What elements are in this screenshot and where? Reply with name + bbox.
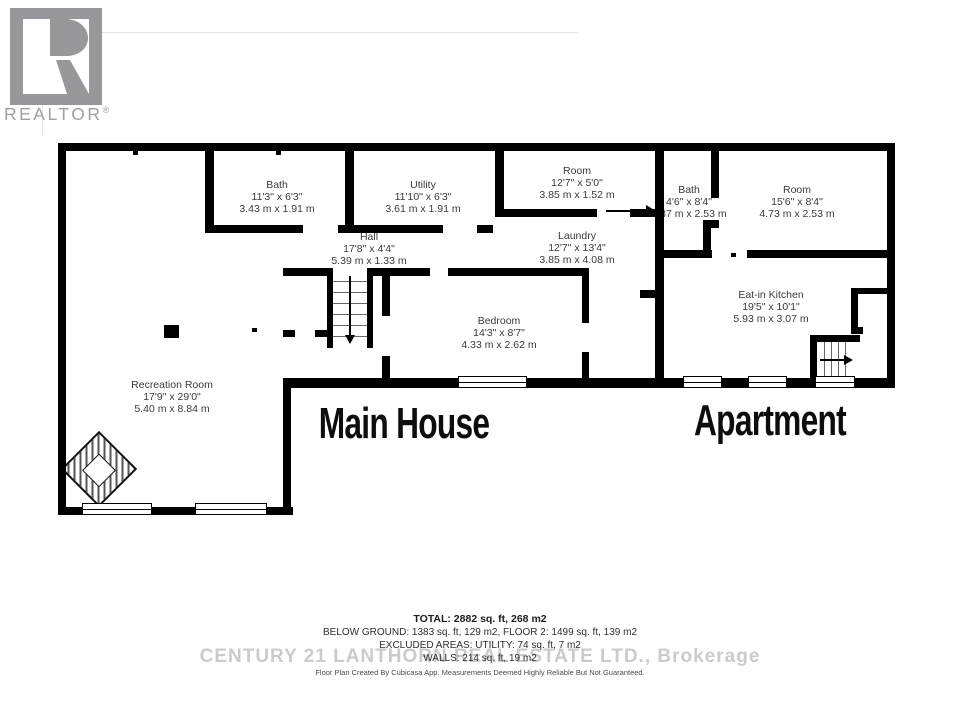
wall-bedroom-left-upper [382,276,390,316]
wall-recroom-right [283,380,291,515]
wall-closet-jamb-a [283,330,295,337]
wall-bedroom-top [448,268,587,276]
wall-apt-niche-jamb [851,327,863,334]
wall-topband-bottom-c [477,225,493,233]
wall-stair-right [367,268,373,348]
window-apartment-2 [748,376,787,388]
wall-bottom-main [283,378,895,388]
realtor-logo [10,8,102,105]
wall-outer-right [887,143,895,388]
realtor-wordmark: REALTOR® [4,104,109,125]
room-label-eat-in-kitchen: Eat-in Kitchen 19'5" x 10'1" 5.93 m x 3.… [691,289,851,325]
wall-apt-bath-right-upper [711,151,719,198]
wall-node-1 [133,150,138,155]
room-label-recreation-room: Recreation Room 17'9" x 29'0" 5.40 m x 8… [92,379,252,415]
wall-midwall-b [368,268,430,276]
apartment-stairs-arrow-head [844,355,853,365]
room-label-utility: Utility 11'10" x 6'3" 3.61 m x 1.91 m [343,179,503,215]
room-label-hall: Hall 17'8" x 4'4" 5.39 m x 1.33 m [289,231,449,267]
wall-kitchen-top-a [655,250,712,258]
total-area-line: TOTAL: 2882 sq. ft, 268 m2 [180,613,780,626]
apartment-stairs-arrow-line [820,359,846,361]
wall-room-main-bottom-a [495,209,597,217]
room-label-bath-main: Bath 11'3" x 6'3" 3.43 m x 1.91 m [197,179,357,215]
wall-room-main-bottom-b [630,209,655,217]
registered-trademark-icon: ® [103,105,110,115]
guide-line-horizontal [42,32,578,33]
below-ground-line: BELOW GROUND: 1383 sq. ft, 129 m2, FLOOR… [180,626,780,639]
walls-line: WALLS: 214 sq. ft, 19 m2 [180,652,780,665]
wall-laundry-jamb [640,290,655,298]
area-summary: TOTAL: 2882 sq. ft, 268 m2 BELOW GROUND:… [180,613,780,665]
wall-bedroom-left-lower [382,356,390,378]
wall-apt-niche-top [853,288,895,294]
window-apartment-stair [815,376,855,388]
wall-topband-bottom-b [338,225,443,233]
wall-closet-jamb-b [315,330,327,337]
wall-bedroom-right-upper [582,268,589,323]
wall-stair-left [327,268,333,348]
wall-kitchen-top-b [747,250,895,258]
wall-apartment-divider [655,143,664,388]
room-label-bedroom: Bedroom 14'3" x 8'7" 4.33 m x 2.62 m [419,315,579,351]
wall-node-2 [276,150,281,155]
apartment-title: Apartment [662,399,878,443]
main-house-title: Main House [296,402,512,446]
window-recroom-2 [195,503,267,515]
room-label-room-apartment: Room 15'6" x 8'4" 4.73 m x 2.53 m [717,184,877,220]
wall-midwall-a [283,268,332,276]
wall-outer-top [58,143,895,151]
wall-node-3 [252,328,257,332]
window-recroom-1 [82,503,152,515]
room-label-laundry: Laundry 12'7" x 13'4" 3.85 m x 4.08 m [497,230,657,266]
wall-apt-stair-top [810,335,860,342]
wall-utility-right [495,143,504,217]
stairs-down-arrow-head [345,335,355,344]
excluded-areas-line: EXCLUDED AREAS: UTILITY: 74 sq. ft, 7 m2 [180,639,780,652]
fireplace-symbol [61,431,137,507]
wall-topband-bottom-a [205,225,303,233]
column [164,325,179,338]
wall-bedroom-right-lower [582,352,589,378]
floor-plan-page: REALTOR® Bath 11'3" x 6'3" 3.43 m x 1.91… [0,0,960,720]
stairs-down-arrow-line [349,276,351,336]
window-apartment-1 [683,376,722,388]
wall-bath-left [205,143,214,233]
door-node [731,253,736,257]
wall-apt-bath-right-lower [703,226,711,253]
disclaimer-text: Floor Plan Created By Cubicasa App. Meas… [180,668,780,677]
wall-bath-utility-divider [345,143,354,233]
wall-outer-left [58,143,66,515]
window-bedroom [458,376,527,388]
